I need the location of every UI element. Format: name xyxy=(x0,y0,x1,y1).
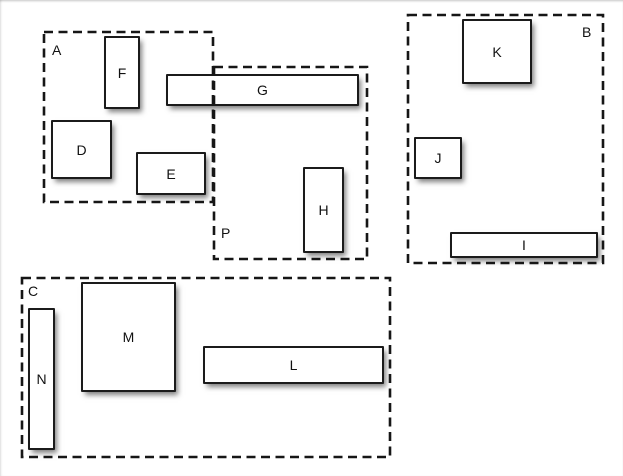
rect-n: N xyxy=(28,308,55,450)
rect-f-label: F xyxy=(118,66,127,80)
group-a-label: A xyxy=(52,43,61,57)
rect-h: H xyxy=(303,167,344,253)
rect-n-label: N xyxy=(36,372,46,386)
diagram-canvas: D E F G H I J K L M N A B C P xyxy=(0,0,623,476)
rect-i: I xyxy=(450,232,598,258)
rect-g-label: G xyxy=(257,83,268,97)
rect-e: E xyxy=(136,152,206,195)
rect-l: L xyxy=(203,346,384,384)
rect-g: G xyxy=(166,74,359,106)
rect-h-label: H xyxy=(318,203,328,217)
rect-m: M xyxy=(81,282,176,392)
rect-f: F xyxy=(104,36,140,109)
group-p-label: P xyxy=(221,226,230,240)
rect-k-label: K xyxy=(492,45,501,59)
rect-m-label: M xyxy=(123,330,135,344)
rect-i-label: I xyxy=(522,238,526,252)
rect-d-label: D xyxy=(76,143,86,157)
rect-e-label: E xyxy=(166,167,175,181)
rect-j-label: J xyxy=(435,151,442,165)
rect-j: J xyxy=(414,137,462,179)
group-b-label: B xyxy=(582,25,591,39)
rect-l-label: L xyxy=(290,358,298,372)
rect-d: D xyxy=(51,120,112,179)
rect-k: K xyxy=(462,19,532,84)
group-c-label: C xyxy=(28,284,38,298)
